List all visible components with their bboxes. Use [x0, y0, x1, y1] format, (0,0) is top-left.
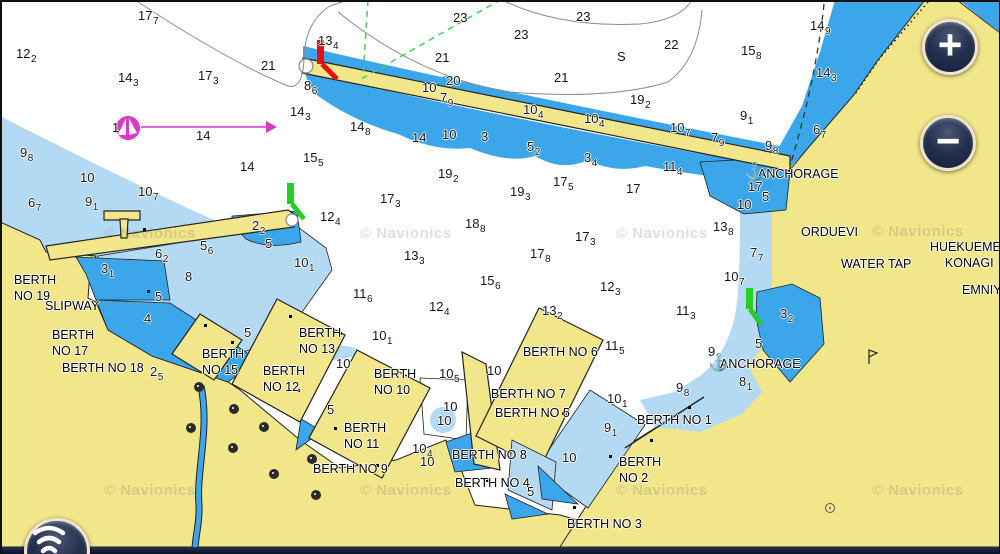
chart-map	[0, 0, 1000, 554]
zoom-in-button[interactable]: +	[922, 19, 978, 75]
sonar-icon	[27, 521, 71, 554]
zoom-out-button[interactable]: −	[920, 115, 976, 171]
navionics-chart-canvas[interactable]: 17712214317321134232323212122S1581498620…	[0, 0, 1000, 554]
bottom-bar	[0, 547, 1000, 554]
frame-top	[0, 0, 1000, 2]
frame-left	[0, 0, 2, 554]
marina-icon[interactable]	[116, 116, 140, 140]
plus-icon: +	[938, 24, 963, 66]
minus-icon: −	[936, 120, 961, 162]
